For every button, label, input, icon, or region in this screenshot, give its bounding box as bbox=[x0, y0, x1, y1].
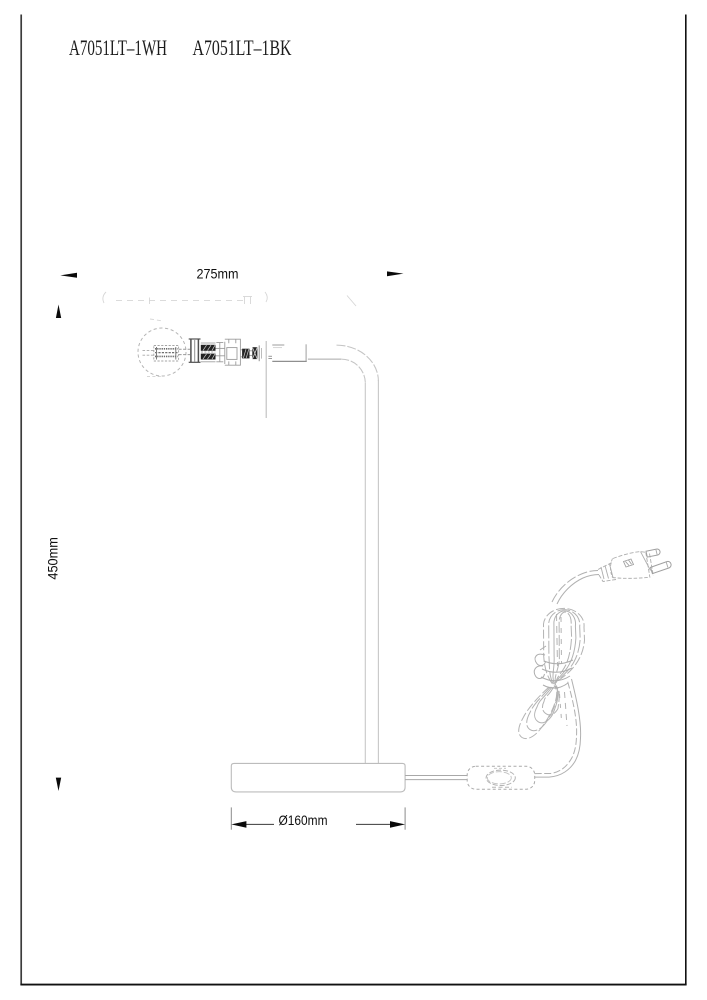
svg-text:275mm: 275mm bbox=[197, 267, 239, 282]
svg-text:Ø160mm: Ø160mm bbox=[279, 813, 328, 828]
svg-text:A7051LT–1WH: A7051LT–1WH bbox=[69, 35, 167, 60]
svg-text:450mm: 450mm bbox=[46, 537, 61, 579]
svg-text:A7051LT–1BK: A7051LT–1BK bbox=[193, 35, 292, 60]
